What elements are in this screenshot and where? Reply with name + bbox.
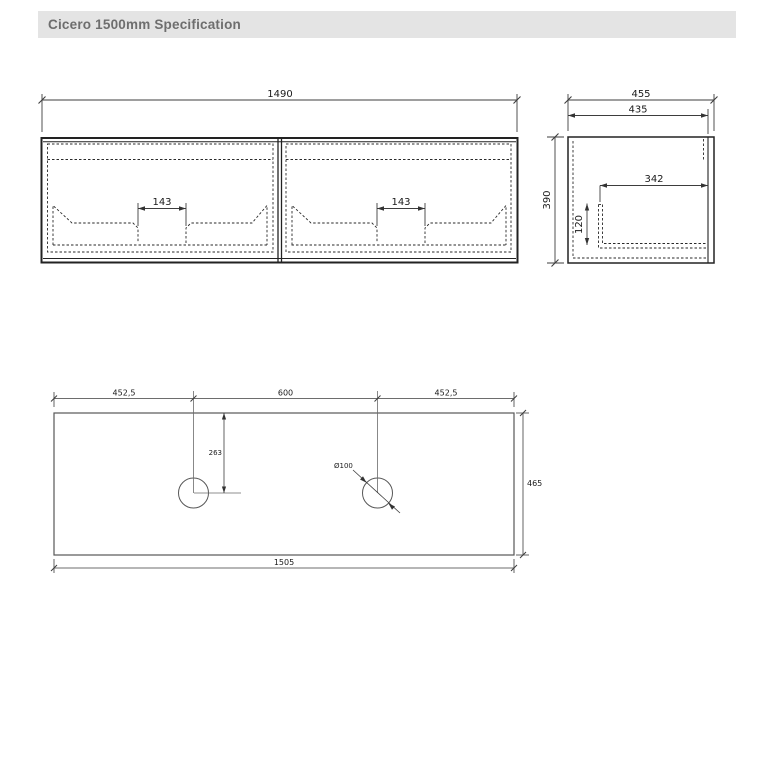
dim-label-600: 600 xyxy=(278,389,293,398)
dim-top-hole-setback: 263 xyxy=(209,413,226,493)
dim-label-143-left: 143 xyxy=(152,197,171,208)
dim-label-1505: 1505 xyxy=(274,558,294,567)
dim-label-143-right: 143 xyxy=(391,197,410,208)
dim-front-handle-right: 143 xyxy=(377,197,425,226)
dim-label-435: 435 xyxy=(628,105,647,116)
specification-drawing: 1490 143 143 xyxy=(0,0,782,783)
top-view: 452,5 600 452,5 263 Ø100 xyxy=(51,389,542,574)
dim-label-d100: Ø100 xyxy=(334,462,353,470)
dim-label-120: 120 xyxy=(574,215,585,234)
dim-label-4525-left: 452,5 xyxy=(113,389,136,398)
dim-side-internal-height: 120 xyxy=(574,204,589,246)
dim-label-465: 465 xyxy=(527,479,542,488)
side-view: 455 435 390 xyxy=(542,89,718,267)
dim-label-390: 390 xyxy=(542,190,553,209)
dim-front-handle-left: 143 xyxy=(138,197,186,226)
front-hidden-lines xyxy=(48,144,512,252)
dim-front-overall-width: 1490 xyxy=(39,89,521,132)
dim-side-internal-depth: 342 xyxy=(600,174,708,202)
dim-label-263: 263 xyxy=(209,449,222,457)
dim-label-4525-right: 452,5 xyxy=(435,389,458,398)
hole-centre-lines xyxy=(194,391,378,493)
front-view: 1490 143 143 xyxy=(39,89,521,263)
dim-top-hole-diameter: Ø100 xyxy=(334,462,400,513)
dim-top-width: 1505 xyxy=(51,558,517,573)
dim-top-hole-positions: 452,5 600 452,5 xyxy=(51,389,517,408)
dim-top-depth: 465 xyxy=(516,410,542,558)
front-cabinet-outline xyxy=(42,138,518,263)
dim-side-carcass-depth: 435 xyxy=(568,105,708,135)
dim-label-342: 342 xyxy=(644,174,663,185)
side-cabinet-outline xyxy=(568,137,714,263)
worktop-outline xyxy=(54,413,514,555)
dim-label-1490: 1490 xyxy=(267,89,292,100)
side-hidden-lines xyxy=(573,139,708,258)
page: { "header": { "title": "Cicero 1500mm Sp… xyxy=(0,0,782,783)
dim-side-height: 390 xyxy=(542,134,564,267)
dim-label-455: 455 xyxy=(631,89,650,100)
